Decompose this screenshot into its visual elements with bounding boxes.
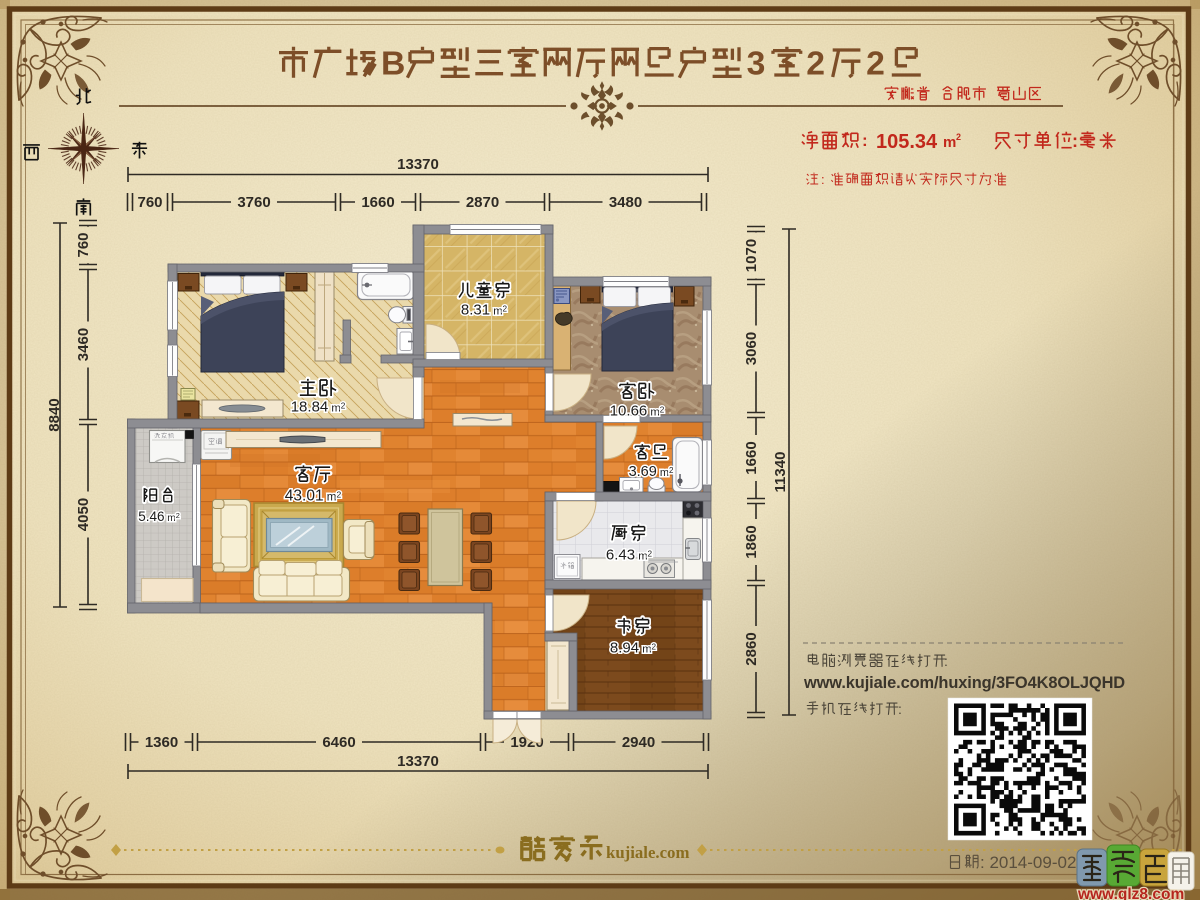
svg-text:3060: 3060	[743, 332, 760, 365]
svg-text:13370: 13370	[397, 156, 439, 173]
svg-text:kujiale.com: kujiale.com	[606, 843, 689, 862]
svg-text:43.01 m2: 43.01 m2	[285, 488, 342, 505]
svg-text:3.69 m2: 3.69 m2	[629, 464, 674, 480]
svg-text:1660: 1660	[361, 194, 394, 211]
svg-text:760: 760	[137, 194, 162, 211]
svg-text:4050: 4050	[75, 498, 92, 531]
svg-text::: :	[1072, 131, 1078, 151]
svg-text::: :	[944, 653, 948, 669]
svg-text:11340: 11340	[772, 452, 789, 493]
svg-text:: 2014-09-02: : 2014-09-02	[980, 853, 1076, 872]
svg-text::: :	[821, 172, 825, 187]
svg-text:2: 2	[806, 44, 825, 82]
svg-text:1860: 1860	[743, 525, 760, 558]
svg-text:B: B	[381, 44, 405, 82]
svg-text:2860: 2860	[743, 632, 760, 665]
svg-text:13370: 13370	[397, 753, 439, 770]
svg-text:3460: 3460	[75, 328, 92, 361]
svg-text:www.glz8.com: www.glz8.com	[1077, 886, 1184, 900]
svg-text:2: 2	[956, 132, 961, 142]
svg-text:2: 2	[866, 44, 885, 82]
svg-text:1070: 1070	[743, 239, 760, 272]
svg-text:760: 760	[75, 232, 92, 257]
svg-text:1660: 1660	[743, 441, 760, 474]
svg-text:2940: 2940	[622, 734, 655, 751]
svg-text:3480: 3480	[609, 194, 642, 211]
svg-text:www.kujiale.com/huxing/3FO4K8O: www.kujiale.com/huxing/3FO4K8OLJQHD	[803, 674, 1125, 692]
svg-text:3760: 3760	[237, 194, 270, 211]
svg-text:2870: 2870	[466, 194, 499, 211]
svg-text:105.34: 105.34	[876, 131, 938, 153]
svg-text::: :	[862, 131, 868, 150]
svg-text:6460: 6460	[322, 734, 355, 751]
svg-text:m: m	[943, 134, 956, 151]
svg-text:3: 3	[747, 44, 766, 82]
svg-text:1360: 1360	[145, 734, 178, 751]
svg-text:8840: 8840	[46, 398, 63, 431]
svg-text::: :	[898, 701, 902, 717]
